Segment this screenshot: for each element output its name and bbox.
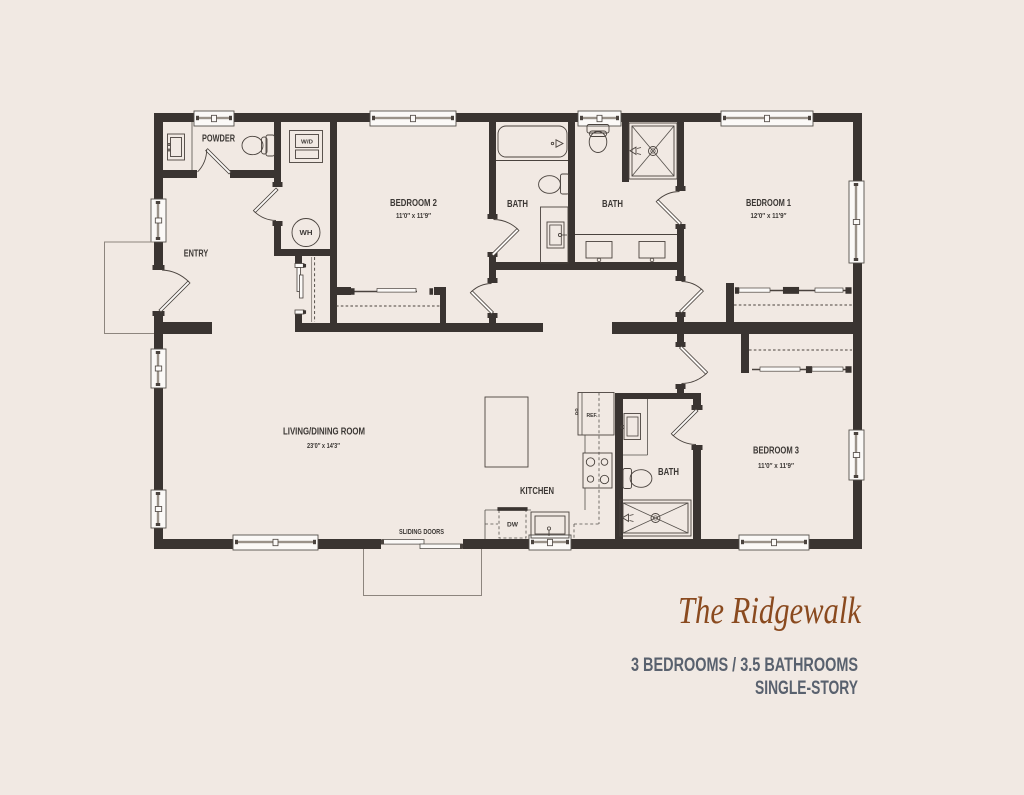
svg-text:POWDER: POWDER: [202, 134, 236, 145]
svg-text:DW: DW: [507, 523, 518, 529]
svg-text:BATH: BATH: [602, 198, 623, 210]
svg-text:The Ridgewalk: The Ridgewalk: [678, 590, 862, 632]
svg-text:ENTRY: ENTRY: [184, 249, 209, 260]
svg-text:BEDROOM 2: BEDROOM 2: [390, 197, 437, 209]
svg-text:23′0″ x 14′3″: 23′0″ x 14′3″: [307, 443, 341, 450]
svg-text:BEDROOM 1: BEDROOM 1: [746, 197, 791, 209]
svg-text:W/D: W/D: [301, 140, 313, 146]
svg-text:REF.: REF.: [587, 413, 598, 419]
svg-text:BEDROOM 3: BEDROOM 3: [753, 445, 799, 457]
svg-text:KITCHEN: KITCHEN: [520, 485, 554, 497]
svg-text:11′0″ x 11′9″: 11′0″ x 11′9″: [758, 463, 795, 470]
svg-text:WH: WH: [300, 230, 313, 237]
svg-text:SINGLE-STORY: SINGLE-STORY: [755, 677, 858, 699]
svg-text:BATH: BATH: [658, 466, 679, 478]
svg-text:11′0″ x 11′9″: 11′0″ x 11′9″: [396, 213, 432, 220]
svg-text:12′0″ x 11′9″: 12′0″ x 11′9″: [751, 213, 788, 220]
svg-text:SLIDING DOORS: SLIDING DOORS: [399, 527, 444, 536]
svg-text:BATH: BATH: [507, 198, 528, 210]
svg-text:3 BEDROOMS / 3.5 BATHROOMS: 3 BEDROOMS / 3.5 BATHROOMS: [631, 654, 858, 676]
svg-text:LIVING/DINING ROOM: LIVING/DINING ROOM: [283, 426, 365, 438]
